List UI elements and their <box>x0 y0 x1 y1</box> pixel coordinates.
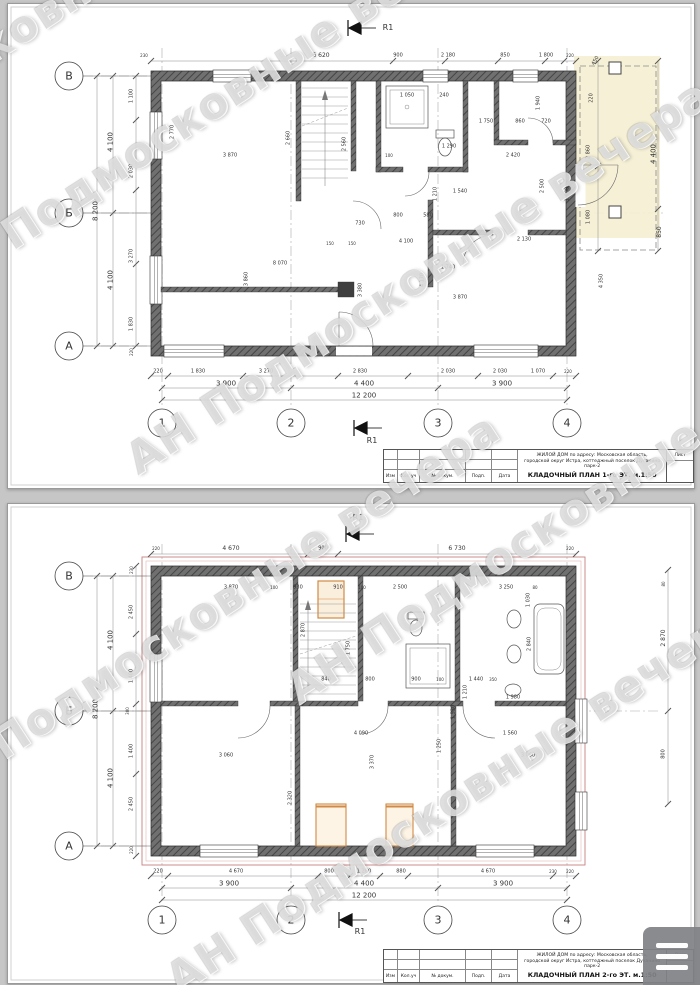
hamburger-icon <box>656 943 688 948</box>
sink <box>507 610 521 628</box>
hamburger-icon <box>656 954 688 959</box>
floorplan-drawing-2 <box>8 504 694 983</box>
floorplan-drawing-1 <box>8 4 694 488</box>
project-line2: городской округ Истра, коттеджный посело… <box>520 459 664 470</box>
title-block: Изм Кол.уч № докум. Подп. Дата ЖИЛОЙ ДОМ… <box>383 449 694 483</box>
plan-title: КЛАДОЧНЫЙ ПЛАН 1-го ЭТ. м.1:50 <box>528 471 657 479</box>
outer-walls <box>151 566 576 856</box>
col-dokum: № докум. <box>420 470 466 482</box>
chimney <box>318 581 344 618</box>
sink <box>507 645 521 663</box>
col-koluch: Кол.уч <box>398 470 420 482</box>
plan-title: КЛАДОЧНЫЙ ПЛАН 2-го ЭТ. м.1:50 <box>528 971 657 979</box>
sink <box>505 684 521 696</box>
outer-walls <box>151 71 576 356</box>
roof-outline <box>142 557 585 865</box>
sheet-floor2: ВБА1234R1R12204 6709006 7302204 1008 200… <box>7 503 695 984</box>
entrance-door-gap <box>336 347 372 356</box>
terrace-column <box>609 206 621 218</box>
toilet-bowl <box>439 138 452 156</box>
toilet-tank <box>408 612 424 619</box>
stairs <box>302 88 348 186</box>
toilet-bowl <box>410 620 422 636</box>
pier-column <box>338 282 354 297</box>
col-podp: Подп. <box>466 970 492 982</box>
dormer-openings <box>316 804 413 846</box>
interior-walls <box>161 576 566 846</box>
windows <box>150 654 587 857</box>
axis-circles <box>55 62 581 437</box>
bathtub <box>534 604 564 674</box>
stair-direction-arrow <box>322 90 328 100</box>
col-data: Дата <box>492 470 518 482</box>
col-data: Дата <box>492 970 518 982</box>
shower-tray <box>406 644 450 688</box>
col-podp: Подп. <box>466 470 492 482</box>
interior-walls <box>161 81 576 297</box>
stair-direction-arrow <box>305 600 311 610</box>
col-izm: Изм <box>384 470 398 482</box>
sheet-floor1: ВБА1234R1R12306 6209002 1808501 80022045… <box>7 3 695 489</box>
menu-button[interactable] <box>643 927 700 985</box>
sheet-number-cell: Лист <box>667 450 693 482</box>
shower-tray <box>386 86 428 128</box>
hamburger-icon <box>656 965 688 970</box>
sheet-label: Лист <box>667 450 693 461</box>
terrace-door-gap <box>576 164 586 207</box>
toilet-tank <box>436 130 454 138</box>
col-izm: Изм <box>384 970 398 982</box>
revision-table: Изм Кол.уч № докум. Подп. Дата <box>384 450 518 482</box>
page-canvas: ВБА1234R1R12306 6209002 1808501 80022045… <box>0 0 700 985</box>
col-koluch: Кол.уч <box>398 970 420 982</box>
project-description: ЖИЛОЙ ДОМ по адресу: Московская область,… <box>518 450 667 482</box>
door-arcs <box>238 706 495 738</box>
windows <box>150 70 586 357</box>
fixtures <box>406 604 564 696</box>
terrace-column <box>609 62 621 74</box>
fixtures <box>386 86 454 156</box>
revision-table: Изм Кол.уч № докум. Подп. Дата <box>384 950 518 982</box>
col-dokum: № докум. <box>420 970 466 982</box>
shower-drain <box>405 105 409 109</box>
terrace <box>574 56 660 250</box>
